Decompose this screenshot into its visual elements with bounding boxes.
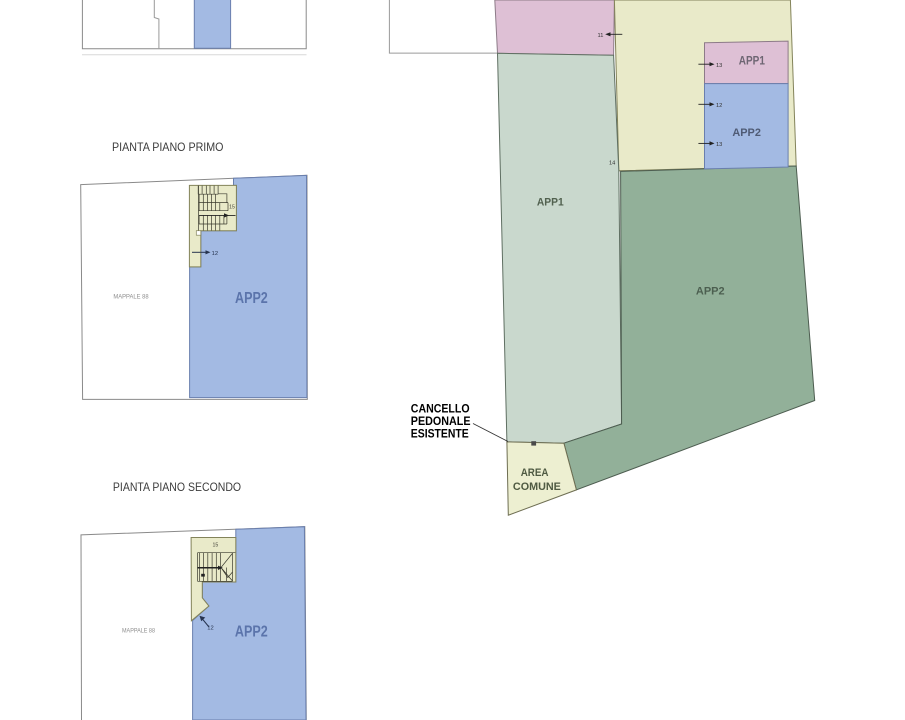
svg-text:APP2: APP2 — [696, 285, 725, 297]
svg-text:APP1: APP1 — [537, 197, 564, 209]
svg-text:PIANTA PIANO PRIMO: PIANTA PIANO PRIMO — [112, 140, 224, 154]
svg-text:PEDONALE: PEDONALE — [411, 415, 471, 428]
svg-text:APP2: APP2 — [235, 290, 268, 307]
svg-text:ESISTENTE: ESISTENTE — [411, 427, 469, 440]
svg-text:PIANTA PIANO SECONDO: PIANTA PIANO SECONDO — [113, 480, 241, 494]
svg-text:12: 12 — [716, 103, 722, 109]
svg-text:APP1: APP1 — [739, 55, 766, 67]
svg-text:12: 12 — [207, 625, 213, 631]
svg-text:13: 13 — [716, 142, 722, 148]
svg-text:15: 15 — [229, 205, 235, 211]
svg-text:MAPPALE 88: MAPPALE 88 — [122, 628, 155, 635]
svg-text:COMUNE: COMUNE — [513, 481, 561, 493]
svg-text:CANCELLO: CANCELLO — [411, 403, 470, 416]
svg-text:MAPPALE 88: MAPPALE 88 — [113, 293, 148, 300]
svg-text:11: 11 — [598, 33, 604, 39]
svg-text:AREA: AREA — [521, 467, 549, 479]
svg-text:14: 14 — [609, 161, 615, 167]
svg-text:APP2: APP2 — [732, 127, 761, 139]
svg-text:APP2: APP2 — [235, 623, 268, 640]
svg-text:13: 13 — [716, 63, 722, 69]
svg-text:15: 15 — [213, 542, 219, 548]
svg-text:12: 12 — [212, 251, 218, 257]
